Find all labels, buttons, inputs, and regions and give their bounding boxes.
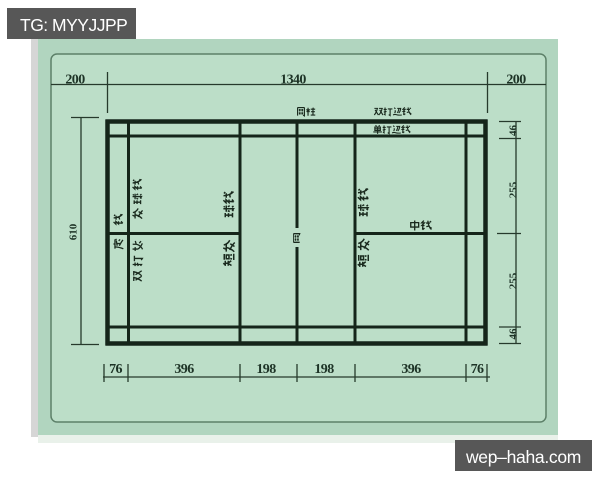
svg-text:46: 46 <box>507 328 519 340</box>
svg-text:1340: 1340 <box>280 73 306 88</box>
svg-text:396: 396 <box>401 362 421 377</box>
svg-text:396: 396 <box>174 362 194 377</box>
svg-text:255: 255 <box>507 181 519 198</box>
svg-text:46: 46 <box>507 125 519 137</box>
svg-text:610: 610 <box>67 223 79 240</box>
svg-text:76: 76 <box>471 362 484 377</box>
svg-text:76: 76 <box>109 362 122 377</box>
svg-text:198: 198 <box>314 362 334 377</box>
svg-text:200: 200 <box>506 73 526 88</box>
svg-text:255: 255 <box>507 272 519 289</box>
svg-text:200: 200 <box>65 73 85 88</box>
svg-text:198: 198 <box>256 362 276 377</box>
